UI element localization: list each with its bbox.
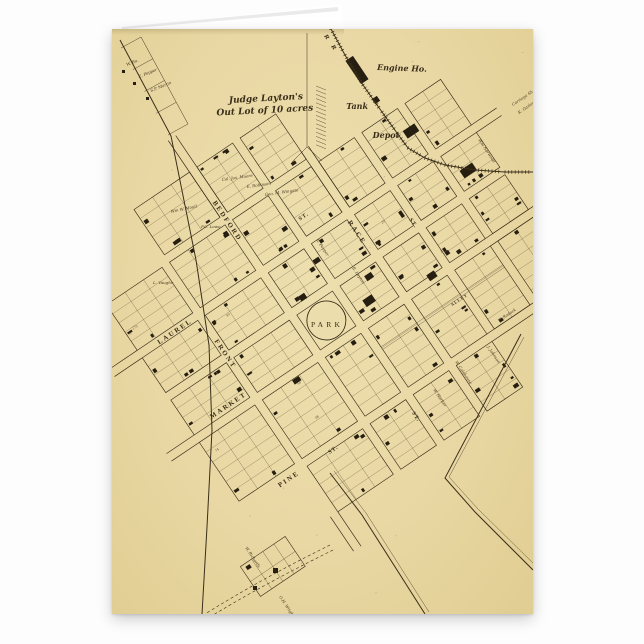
map-text-layer: Judge Layton's Out Lot of 10 acres R R E… (216, 33, 427, 329)
owner-name-label: E. Robinson (245, 181, 271, 190)
railroad-rr-label: R R (322, 33, 339, 54)
owner-name-label: E. Pepper (137, 66, 159, 79)
owner-name-label: P.C. Lowe (200, 224, 221, 229)
owner-name-label: W. Ba. (126, 58, 140, 67)
lot-number-label: 49 (225, 312, 231, 318)
owner-name-label: Wm W. Moull (170, 203, 198, 214)
street-label-st-3: ST. (327, 445, 339, 456)
lot-number-label: 74 (214, 447, 220, 453)
lot-number-label: 170 (131, 324, 138, 331)
fold-shadow (112, 29, 344, 35)
street-label-st-4: ST. (410, 411, 421, 423)
owner-name-label: W. Harber (432, 388, 448, 409)
street-label-st-1: ST. (298, 211, 310, 222)
blocks-layer (112, 29, 533, 607)
street-label-st-2: ST. (407, 217, 418, 229)
owner-name-label: G.H. Wright (278, 595, 296, 614)
owner-name-label: W. Richards (244, 546, 262, 569)
depot-label: Depot (372, 130, 400, 140)
street-label-laurel: LAUREL (156, 318, 193, 346)
engine-house-label: Engine Ho. (376, 62, 427, 74)
lot-number-label: 58 (296, 380, 302, 386)
owner-name-label: Wm Norwood (477, 138, 497, 164)
owner-name-label: J. Johnson (486, 344, 502, 365)
owner-name-label: Col. Jos. Moore (221, 173, 253, 182)
owner-names-layer: W. Ba.E. PepperS.P. MartinWm W. MoullP.C… (126, 58, 533, 614)
rotated-grid-layer: BEDFORD ST. RACE ST. FRONT LAUREL MARKET… (112, 29, 533, 607)
card-front-cover[interactable]: BEDFORD ST. RACE ST. FRONT LAUREL MARKET… (112, 29, 533, 614)
street-label-race: RACE (346, 220, 367, 247)
park-label: PARK (311, 320, 343, 329)
street-label-front: FRONT (213, 338, 238, 370)
lot-number-label: 86 (314, 414, 320, 420)
street-label-market: MARKET (209, 391, 248, 421)
lot-number-label: 29 (380, 219, 386, 225)
engine-house-building (345, 56, 368, 84)
owner-name-label: R. Layton (351, 265, 367, 285)
owner-name-label: L. Vaughn (152, 280, 174, 285)
owner-name-label: W. Colehouse (454, 360, 474, 386)
town-map-illustration: BEDFORD ST. RACE ST. FRONT LAUREL MARKET… (112, 29, 533, 614)
product-photo-stage: BEDFORD ST. RACE ST. FRONT LAUREL MARKET… (0, 0, 644, 644)
depot-building (403, 123, 420, 138)
owner-name-label: Geo. M. Wingate (264, 187, 299, 197)
tank-label: Tank (346, 101, 368, 111)
owner-name-label: S.P. Martin (150, 80, 173, 93)
